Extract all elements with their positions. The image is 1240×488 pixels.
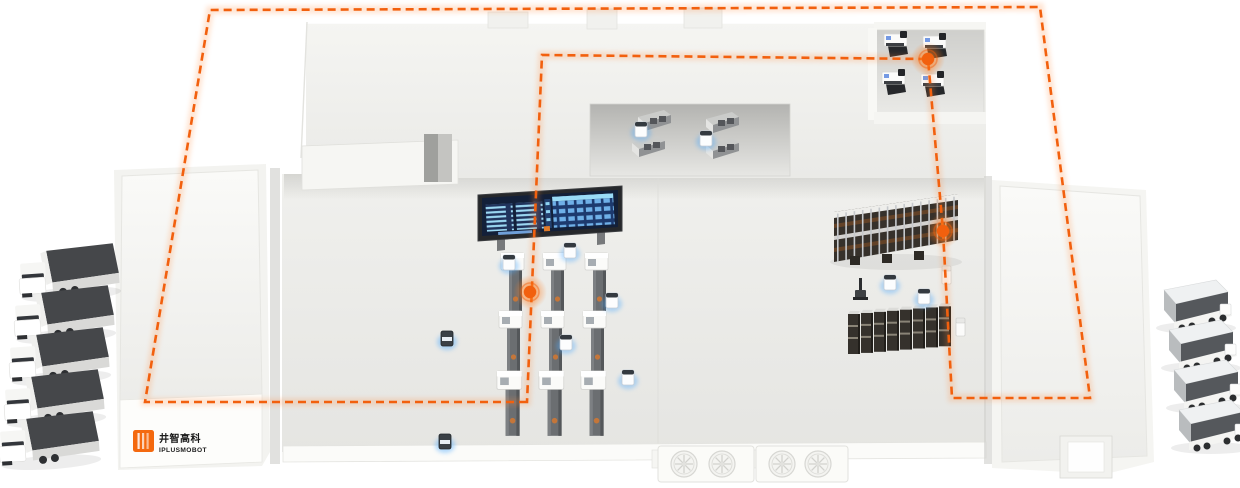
dock-fan-icon — [671, 451, 697, 477]
rack-module — [874, 309, 886, 352]
logo-icon-slit — [142, 433, 144, 449]
dashboard-status-tick — [546, 210, 550, 213]
rack-post — [862, 210, 864, 257]
logo-icon-slit — [138, 433, 140, 449]
rack-module — [900, 307, 912, 350]
rack-post — [887, 206, 889, 252]
route-waypoint — [513, 275, 547, 309]
building-gap-right — [984, 176, 992, 464]
roof-tab — [488, 12, 528, 28]
dashboard-table — [485, 203, 514, 232]
rack-post — [845, 212, 847, 260]
rack-module — [848, 311, 860, 354]
right-annex-roof — [1000, 186, 1147, 462]
dashboard-leg — [597, 232, 605, 245]
workbench-bay — [590, 104, 790, 176]
right-annex-building — [992, 180, 1154, 478]
rack-post — [920, 202, 922, 247]
route-waypoint — [911, 42, 945, 76]
pallet-bin — [850, 256, 860, 265]
rack-module — [887, 308, 899, 351]
logo: 井智高科 IPLUSMOBOT — [133, 430, 207, 454]
building-gap-left — [270, 168, 280, 464]
logo-icon-slit — [147, 433, 149, 449]
pallet-bin — [914, 251, 924, 260]
logo-text-en: IPLUSMOBOT — [159, 447, 207, 454]
dashboard-accent-chip — [544, 226, 550, 231]
dock-fan-icon — [709, 451, 735, 477]
main-front-band — [283, 442, 986, 462]
loader-robot — [956, 318, 965, 336]
logo-text-cn: 井智高科 — [159, 432, 201, 445]
factory-illustration: 井智高科 IPLUSMOBOT — [0, 0, 1240, 488]
pallet-bin — [882, 254, 892, 263]
left-annex-roof — [120, 170, 262, 402]
rack-post — [870, 209, 872, 256]
rack-post — [879, 208, 881, 255]
dashboard-status-tick — [546, 218, 550, 221]
left-annex-building: 井智高科 IPLUSMOBOT — [114, 164, 280, 470]
buildings: 井智高科 IPLUSMOBOT — [114, 8, 1154, 482]
doorway-opening-inner — [438, 134, 452, 182]
machine-bay-left-wall — [868, 28, 877, 120]
rack-module — [926, 304, 938, 347]
dock-fan-icon — [769, 451, 795, 477]
rack-module — [913, 306, 925, 349]
right-dock-trucks — [1156, 280, 1240, 454]
rack-post — [895, 205, 897, 251]
rack-module — [861, 310, 873, 353]
rack-post — [854, 211, 856, 258]
dock-vent-units — [652, 446, 848, 482]
right-annex-doorway-inner — [1068, 442, 1104, 472]
dashboard-table — [515, 201, 544, 230]
dashboard-status-tick — [545, 202, 549, 205]
rack-post — [837, 214, 839, 262]
route-waypoint — [926, 214, 960, 248]
rack-post — [912, 203, 914, 248]
rack-post — [903, 204, 905, 250]
factory-scene: 井智高科 IPLUSMOBOT — [0, 0, 1240, 488]
dock-fan-icon — [805, 451, 831, 477]
left-dock-trucks — [0, 243, 122, 473]
